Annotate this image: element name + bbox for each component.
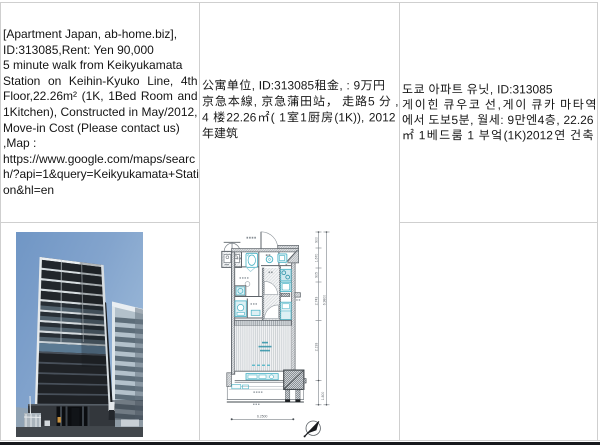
- svg-text:6.2500: 6.2500: [257, 415, 267, 419]
- svg-text:900: 900: [315, 237, 319, 243]
- svg-text:2.193: 2.193: [315, 343, 319, 352]
- svg-text:1.670: 1.670: [315, 254, 319, 263]
- svg-text:2.743: 2.743: [315, 297, 319, 306]
- svg-text:905: 905: [315, 272, 319, 278]
- svg-text:1.800: 1.800: [321, 392, 325, 401]
- svg-text:6.9800: 6.9800: [323, 295, 327, 305]
